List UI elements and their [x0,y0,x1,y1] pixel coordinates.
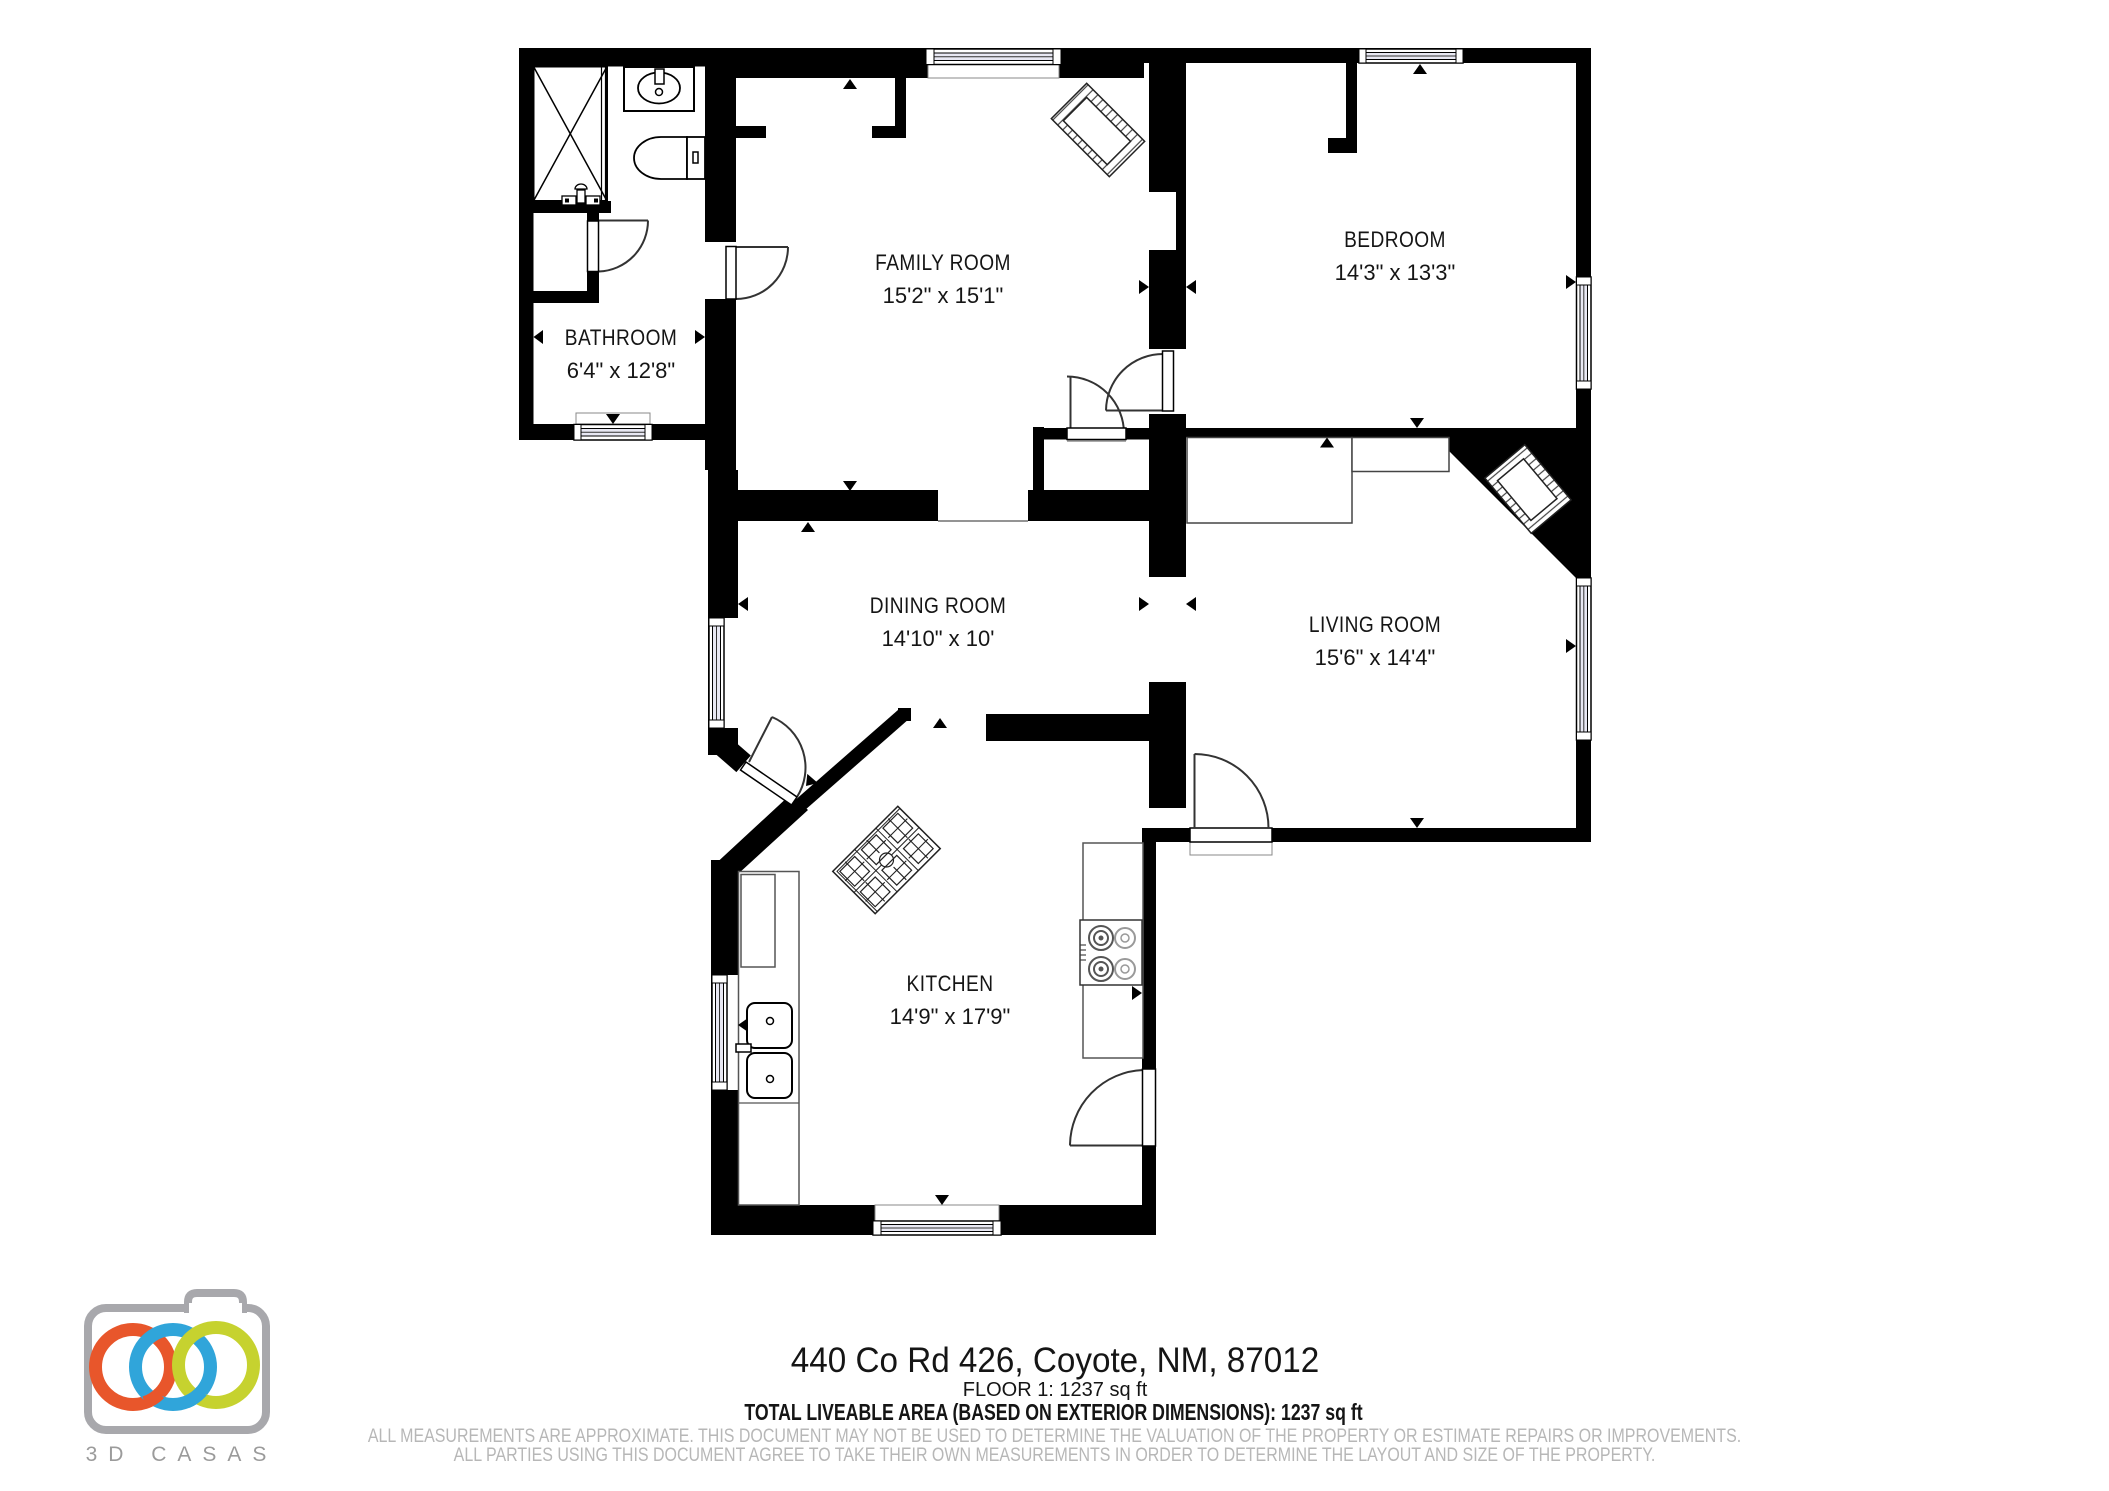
svg-text:440 Co Rd 426, Coyote, NM, 870: 440 Co Rd 426, Coyote, NM, 87012 [791,1341,1319,1380]
svg-text:ALL PARTIES USING THIS DOCUMEN: ALL PARTIES USING THIS DOCUMENT AGREE TO… [454,1444,1656,1466]
svg-text:TOTAL LIVEABLE AREA (BASED ON: TOTAL LIVEABLE AREA (BASED ON EXTERIOR D… [744,1400,1362,1426]
svg-text:6'4" x 12'8": 6'4" x 12'8" [567,358,675,383]
svg-text:3D CASAS: 3D CASAS [86,1443,278,1466]
svg-text:14'10" x 10': 14'10" x 10' [882,626,995,651]
svg-text:BEDROOM: BEDROOM [1344,228,1446,253]
svg-text:LIVING ROOM: LIVING ROOM [1309,613,1441,638]
svg-text:15'2" x 15'1": 15'2" x 15'1" [883,283,1004,308]
svg-text:FLOOR 1: 1237 sq ft: FLOOR 1: 1237 sq ft [963,1379,1148,1401]
svg-text:14'3" x 13'3": 14'3" x 13'3" [1335,260,1456,285]
svg-text:BATHROOM: BATHROOM [565,326,677,351]
svg-text:FAMILY ROOM: FAMILY ROOM [875,251,1011,276]
svg-text:15'6" x 14'4": 15'6" x 14'4" [1315,645,1436,670]
svg-text:14'9" x 17'9": 14'9" x 17'9" [890,1004,1011,1029]
svg-text:DINING ROOM: DINING ROOM [870,594,1006,619]
svg-text:KITCHEN: KITCHEN [907,972,994,997]
